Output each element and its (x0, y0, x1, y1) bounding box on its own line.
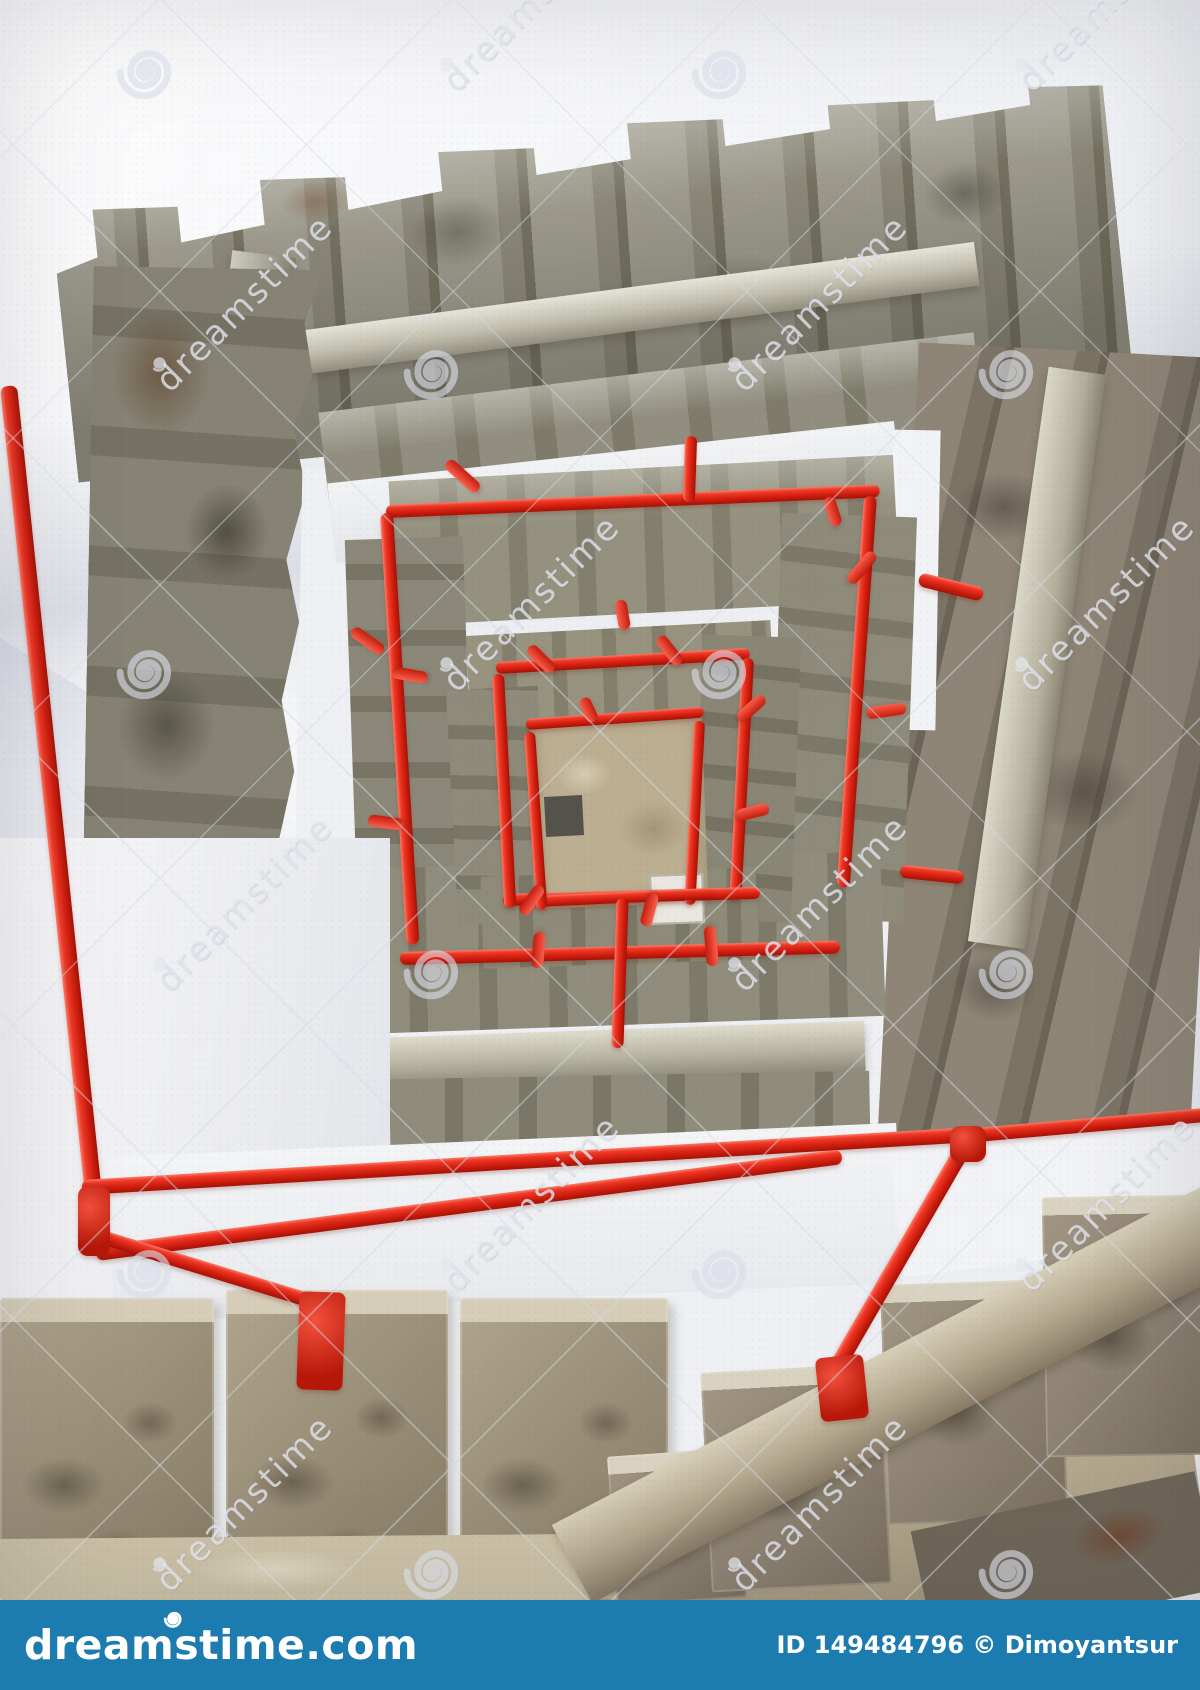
red-rail-post (683, 436, 697, 502)
image-credit-text: ID 149484796 © Dimoyantsur (777, 1631, 1178, 1659)
footer-credit-bar: dreamstime.com ID 149484796 © Dimoyantsu… (0, 1600, 1200, 1690)
red-post-foot (296, 1291, 345, 1391)
red-rail-joint (950, 1126, 986, 1162)
stairwell-photo: dreamstime dreamstime dreamstime dreamst… (0, 0, 1200, 1600)
red-post-foot (815, 1354, 869, 1423)
image-credit: ID 149484796 © Dimoyantsur (777, 1600, 1178, 1690)
dreamstime-logo[interactable]: dreamstime.com (24, 1600, 418, 1690)
dreamstime-logo-text: dreamstime.com (24, 1621, 418, 1669)
dreamstime-spiral-icon (162, 1607, 186, 1635)
floor-hatch-patch (544, 795, 584, 837)
red-rail-joint (78, 1186, 110, 1256)
stock-photo-preview: dreamstime dreamstime dreamstime dreamst… (0, 0, 1200, 1690)
